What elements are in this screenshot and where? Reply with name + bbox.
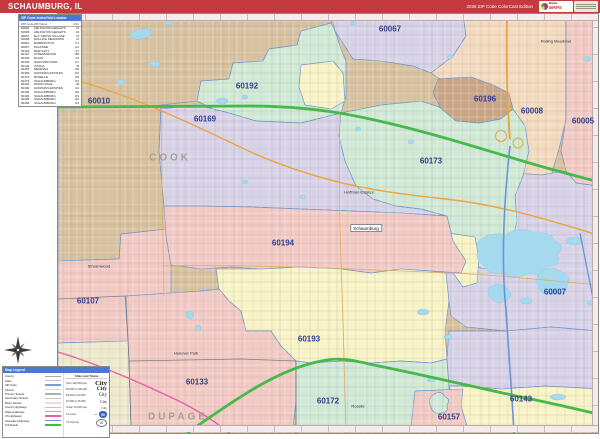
col-zip-name: ZIP Name <box>34 22 73 26</box>
title-bar: SCHAUMBURG, IL 2026 ZIP Code ColorCast E… <box>0 0 600 13</box>
bottom-ruler <box>58 425 598 432</box>
us-route-shield-icon: 20 <box>96 419 107 427</box>
legend-road-row: Toll Roads <box>5 423 61 427</box>
cities-and-towns-header: Cities and Towns <box>66 374 107 379</box>
road-sample-line <box>45 384 61 385</box>
col-zip-code: ZIP Code <box>21 22 34 26</box>
compass-rose-icon <box>3 334 33 366</box>
road-sample-line <box>45 376 61 377</box>
marketmaps-logo: Market MAPS <box>539 1 573 12</box>
edition-label: 2026 ZIP Code ColorCast Edition <box>467 4 533 9</box>
map-graphic <box>58 14 598 433</box>
road-sample-line <box>45 420 61 421</box>
road-sample-line <box>45 402 61 403</box>
zip-index-rows: 60004 ARLINGTON HEIGHTS J1 60005 ARLINGT… <box>19 27 81 106</box>
road-sample-line <box>45 398 61 399</box>
map-legend-panel: Map Legend County State ZIP Code Streets <box>2 366 110 438</box>
col-loc: LOC <box>73 22 79 26</box>
us-route-shield-row: US Highway 20 <box>66 419 107 427</box>
road-sample-line <box>45 424 61 425</box>
right-ruler <box>592 14 599 433</box>
legend-road-rows: County State ZIP Code Streets Primary St… <box>3 373 64 437</box>
interstate-shield-icon: 90 <box>99 411 107 418</box>
road-sample-line <box>45 389 61 390</box>
logo-brand-main: MAPS <box>549 6 562 10</box>
logo-swirl-icon <box>541 3 548 10</box>
zip-index-row: 60196 SCHAUMBURG G3 <box>19 102 81 106</box>
map-canvas <box>57 13 599 434</box>
road-sample-line <box>45 393 61 394</box>
top-ruler <box>58 14 598 21</box>
city-size-rows: Over 100,000 pop. City 50,000 to 100,000… <box>66 380 107 411</box>
zip-code-map-document: { "title_bar": { "title": "SCHAUMBURG, I… <box>0 0 600 439</box>
publisher-box <box>574 1 598 12</box>
map-title: SCHAUMBURG, IL <box>8 2 82 11</box>
road-sample-line <box>45 380 61 381</box>
road-sample-line <box>45 411 61 412</box>
road-sample-line <box>45 415 61 416</box>
zip-index-panel: ZIP Code Index/Grid Locator ZIP Code ZIP… <box>18 14 82 107</box>
road-sample-line <box>45 407 61 408</box>
interstate-shield-row: Interstate 90 <box>66 411 107 419</box>
